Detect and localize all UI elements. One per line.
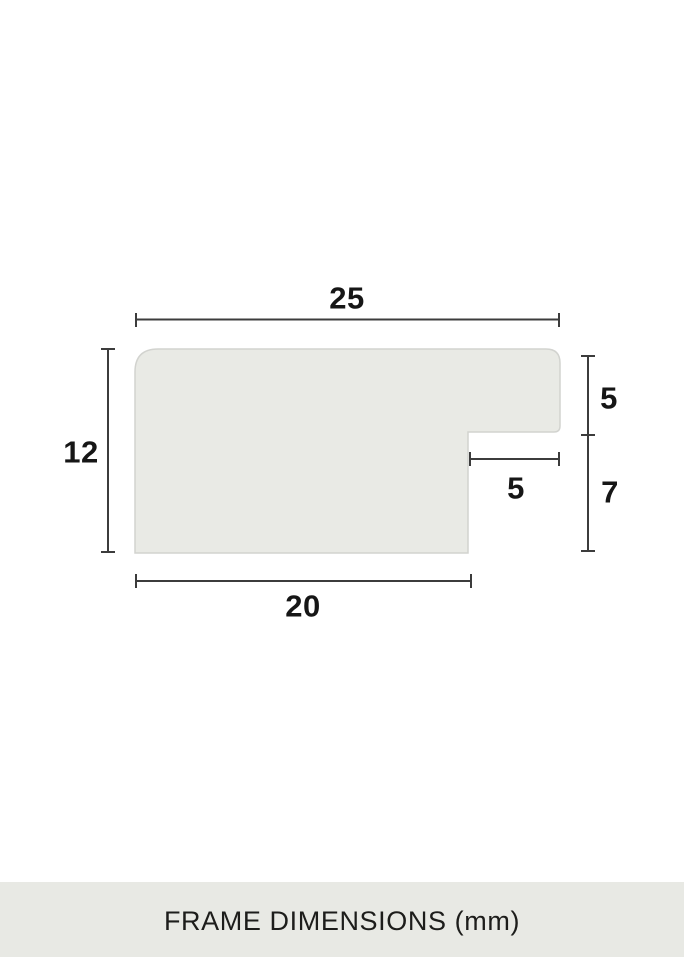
dim-label-top-width: 25 xyxy=(329,283,364,314)
dim-label-left-height: 12 xyxy=(63,437,98,468)
caption-title: FRAME DIMENSIONS (mm) xyxy=(164,902,520,937)
dim-label-bottom-width: 20 xyxy=(285,591,320,622)
dim-label-right-upper-height: 5 xyxy=(600,383,618,414)
dim-label-rabbet-width: 5 xyxy=(507,473,525,504)
dim-label-right-lower-height: 7 xyxy=(601,477,619,508)
profile-diagram-svg xyxy=(0,0,684,882)
frame-dimensions-page: 25 12 5 7 5 20 FRAME DIMENSIONS (mm) xyxy=(0,0,684,957)
frame-profile-shape xyxy=(135,349,560,553)
profile-diagram: 25 12 5 7 5 20 xyxy=(0,0,684,882)
caption-bar: FRAME DIMENSIONS (mm) xyxy=(0,882,684,957)
